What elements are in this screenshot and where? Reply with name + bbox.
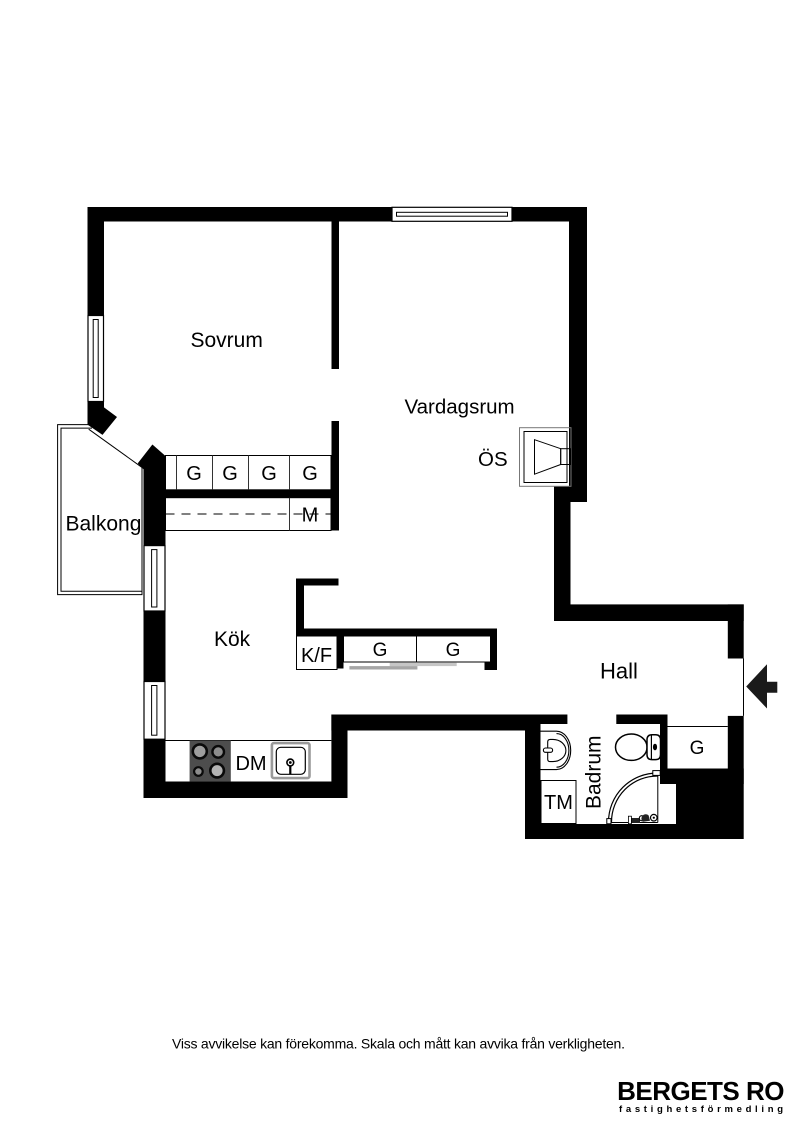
svg-text:Sovrum: Sovrum (191, 329, 263, 352)
svg-text:G: G (446, 640, 461, 661)
svg-text:K/F: K/F (301, 645, 332, 667)
svg-text:M: M (302, 505, 319, 527)
svg-text:Badrum: Badrum (583, 735, 606, 809)
svg-text:Hall: Hall (600, 659, 638, 684)
svg-text:Kök: Kök (214, 628, 251, 651)
svg-text:G: G (690, 738, 705, 759)
svg-text:G: G (186, 463, 202, 485)
svg-text:TM: TM (544, 792, 573, 814)
svg-text:G: G (373, 640, 388, 661)
svg-text:ÖS: ÖS (478, 448, 508, 471)
svg-text:Viss avvikelse kan förekomma.: Viss avvikelse kan förekomma. Skala och … (172, 1036, 625, 1052)
svg-text:BERGETS RO: BERGETS RO (617, 1076, 784, 1106)
svg-text:G: G (261, 463, 277, 485)
svg-text:G: G (222, 463, 238, 485)
svg-text:G: G (302, 463, 318, 485)
svg-text:Balkong: Balkong (66, 513, 142, 536)
svg-text:Vardagsrum: Vardagsrum (405, 396, 515, 419)
svg-text:DM: DM (235, 753, 266, 775)
